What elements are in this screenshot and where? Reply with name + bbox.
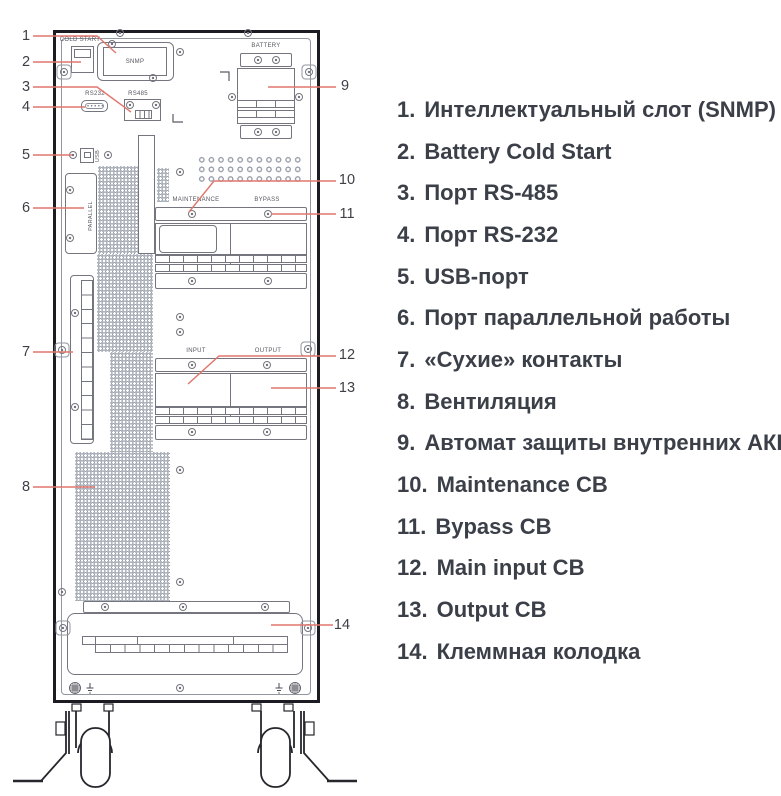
screw-icon <box>304 624 312 632</box>
terminal-row <box>155 264 307 272</box>
legend-item-number: 13. <box>397 597 428 623</box>
usb-label: USB <box>95 150 101 162</box>
output-label: OUTPUT <box>255 348 281 354</box>
screw-icon <box>179 603 187 611</box>
dry-contacts-terminals <box>81 280 93 440</box>
callout-number: 2 <box>22 54 30 70</box>
battery-bottom-plate <box>240 125 292 139</box>
battery-breaker-row <box>237 110 295 118</box>
screw-icon <box>188 428 196 436</box>
legend-item: 8.Вентиляция <box>397 381 779 423</box>
legend-item-number: 6. <box>397 305 415 331</box>
input-output-top-strip <box>155 358 307 372</box>
legend-item-label: Порт RS-485 <box>424 180 558 206</box>
page: COLD START SNMP RS232 RS485 USB PARALLEL <box>0 0 781 796</box>
screw-icon <box>244 29 252 37</box>
input-output-box <box>155 373 307 407</box>
callout-number: 4 <box>22 99 30 115</box>
screw-icon <box>69 151 77 159</box>
screw-icon <box>264 210 272 218</box>
callout-number: 12 <box>339 347 355 363</box>
legend-item-label: Maintenance CB <box>437 472 608 498</box>
screw-icon <box>305 68 313 76</box>
screw-icon <box>254 56 262 64</box>
screw-icon <box>176 48 184 56</box>
vent-grid <box>75 452 170 601</box>
screw-icon <box>152 101 160 109</box>
legend-item-number: 9. <box>397 430 415 456</box>
rs485-terminal <box>135 110 152 119</box>
ups-rear-panel-diagram: COLD START SNMP RS232 RS485 USB PARALLEL <box>0 0 390 796</box>
maintenance-bypass-top-strip <box>155 207 307 221</box>
rs232-port <box>81 100 108 112</box>
screw-icon <box>108 40 116 48</box>
maintenance-label: MAINTENANCE <box>173 197 220 203</box>
screw-icon <box>176 466 184 474</box>
legend-item: 1.Интеллектуальный слот (SNMP) <box>397 89 779 131</box>
screw-icon <box>66 234 74 242</box>
input-output-bottom-strip <box>155 425 307 440</box>
rs485-label: RS485 <box>128 91 148 97</box>
legend-item-number: 14. <box>397 639 428 665</box>
legend-item: 13.Output CB <box>397 589 779 631</box>
cold-start-label: COLD START <box>60 37 100 43</box>
rs232-pins <box>85 103 104 109</box>
terminal-row <box>155 416 307 424</box>
callout-number: 9 <box>341 78 349 94</box>
callout-number: 10 <box>339 172 355 188</box>
legend-item-number: 4. <box>397 222 415 248</box>
caster-wheel <box>13 704 357 787</box>
vent-grid <box>98 166 138 254</box>
legend-item-label: Вентиляция <box>424 389 556 415</box>
callout-number: 6 <box>22 200 30 216</box>
terminal-row <box>155 255 307 263</box>
parallel-label: PARALLEL <box>88 201 94 231</box>
cable-duct <box>138 135 155 254</box>
legend-item: 10.Maintenance CB <box>397 464 779 506</box>
callout-number: 11 <box>339 206 354 222</box>
legend-item-number: 5. <box>397 264 415 290</box>
legend-item-number: 2. <box>397 139 415 165</box>
screw-icon <box>116 29 124 37</box>
screw-icon <box>254 128 262 136</box>
screw-icon <box>188 277 196 285</box>
legend-item: 4.Порт RS-232 <box>397 214 779 256</box>
maintenance-cb-cover <box>159 225 217 253</box>
screw-icon <box>188 210 196 218</box>
screw-icon <box>104 151 112 159</box>
snmp-label: SNMP <box>126 59 145 65</box>
legend-item-number: 11. <box>397 514 426 540</box>
battery-top-plate <box>240 53 292 67</box>
callout-number: 7 <box>22 344 30 360</box>
legend-item-label: Output CB <box>437 597 547 623</box>
screw-icon <box>261 603 269 611</box>
screw-icon <box>60 68 68 76</box>
vent-hole-grid <box>197 155 303 185</box>
battery-label: BATTERY <box>251 43 280 49</box>
callout-number: 3 <box>22 79 30 95</box>
legend-item: 12.Main input CB <box>397 548 779 590</box>
vent-grid <box>110 352 153 452</box>
legend-item: 14.Клеммная колодка <box>397 631 779 673</box>
callout-number: 5 <box>22 147 30 163</box>
legend-item-number: 10. <box>397 472 428 498</box>
vent-grid <box>97 254 153 352</box>
legend-item-label: Battery Cold Start <box>424 139 611 165</box>
legend-item: 2.Battery Cold Start <box>397 131 779 173</box>
screw-icon <box>176 313 184 321</box>
legend-item-label: Интеллектуальный слот (SNMP) <box>424 97 776 123</box>
screw-icon <box>71 309 79 317</box>
cold-start-switch-button <box>74 49 91 58</box>
callout-number: 13 <box>339 380 355 396</box>
screw-icon <box>101 603 109 611</box>
legend-item-label: USB-порт <box>424 264 528 290</box>
screw-icon <box>58 346 66 354</box>
screw-icon <box>176 328 184 336</box>
callout-number: 14 <box>334 617 350 633</box>
screw-icon <box>304 345 312 353</box>
callout-number: 8 <box>22 479 30 495</box>
legend-item-label: Клеммная колодка <box>437 639 641 665</box>
legend-item: 6.Порт параллельной работы <box>397 297 779 339</box>
maintenance-bypass-bottom-strip <box>155 273 307 289</box>
legend-item: 3.Порт RS-485 <box>397 172 779 214</box>
screw-icon <box>228 93 236 101</box>
screw-icon <box>71 403 79 411</box>
input-label: INPUT <box>186 348 206 354</box>
screw-icon <box>58 588 66 596</box>
screw-icon <box>176 684 184 692</box>
legend-item: 11.Bypass CB <box>397 506 779 548</box>
legend-item: 5.USB-порт <box>397 256 779 298</box>
screw-icon <box>295 93 303 101</box>
screw-icon <box>188 361 196 369</box>
screw-icon <box>272 56 280 64</box>
legend-item-label: Bypass CB <box>435 514 551 540</box>
screw-icon <box>263 428 271 436</box>
legend-item-label: Main input CB <box>437 555 585 581</box>
legend-item-number: 3. <box>397 180 415 206</box>
battery-breaker-row <box>237 100 295 108</box>
vent-grid <box>157 168 169 202</box>
terminal-strip-lower <box>95 644 288 653</box>
legend-item-number: 12. <box>397 555 428 581</box>
legend-item-label: Порт RS-232 <box>424 222 558 248</box>
legend-item-number: 7. <box>397 347 415 373</box>
screw-icon <box>59 624 67 632</box>
legend-item-number: 8. <box>397 389 415 415</box>
callout-number: 1 <box>22 28 30 44</box>
screw-icon <box>176 578 184 586</box>
terminal-row <box>155 407 307 415</box>
screw-icon <box>263 361 271 369</box>
legend-item-label: «Сухие» контакты <box>424 347 622 373</box>
legend-item-number: 1. <box>397 97 415 123</box>
legend-item: 7.«Сухие» контакты <box>397 339 779 381</box>
screw-icon <box>264 277 272 285</box>
legend-item-label: Автомат защиты внутренних АКБ <box>424 430 781 456</box>
legend: 1.Интеллектуальный слот (SNMP) 2.Battery… <box>397 89 779 673</box>
screw-icon <box>176 168 184 176</box>
rs232-label: RS232 <box>85 91 105 97</box>
usb-port-inner <box>84 152 91 158</box>
legend-item: 9.Автомат защиты внутренних АКБ <box>397 423 779 465</box>
screw-icon <box>66 186 74 194</box>
screw-icon <box>272 128 280 136</box>
screw-icon <box>126 101 134 109</box>
legend-item-label: Порт параллельной работы <box>424 305 730 331</box>
screw-icon <box>149 74 157 82</box>
bypass-label: BYPASS <box>254 197 279 203</box>
